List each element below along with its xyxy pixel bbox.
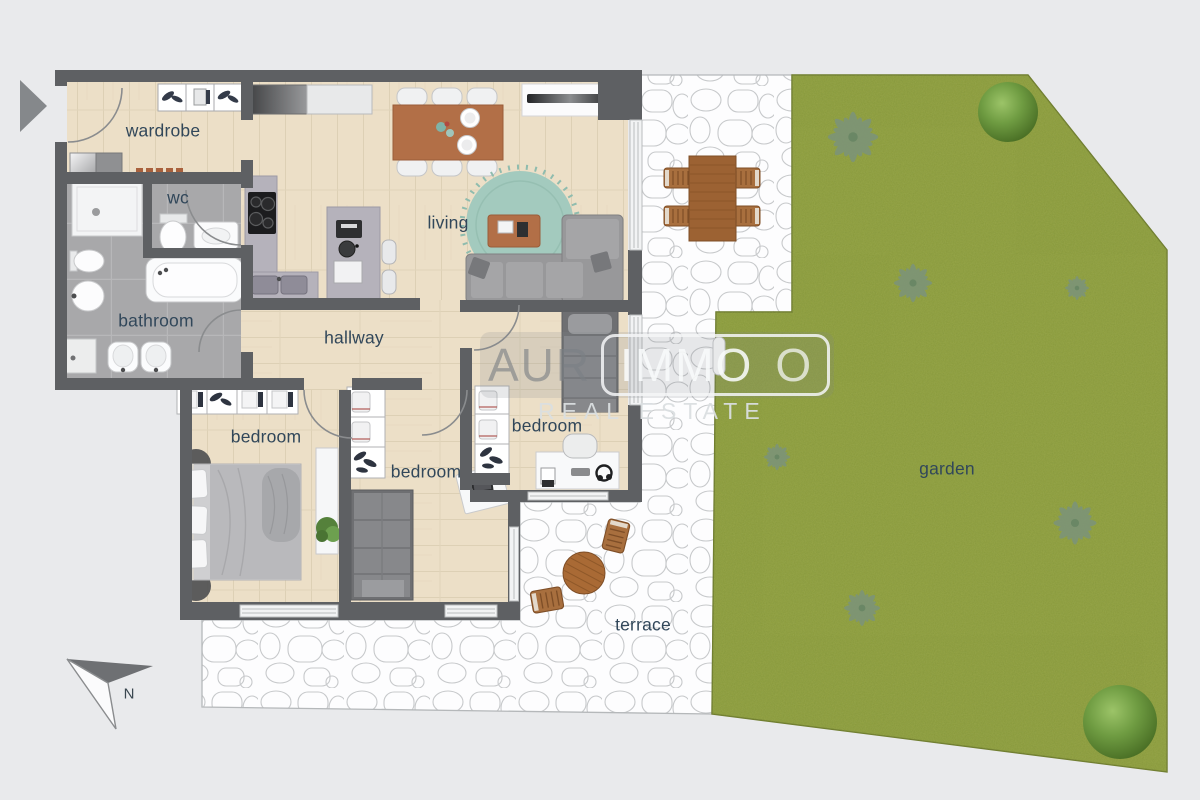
outdoor-chair-icon [664, 168, 692, 188]
room-label-living: living [427, 213, 468, 234]
watermark-brand-left: AUR [484, 338, 595, 392]
pillow-icon [568, 314, 612, 334]
watermark-brand-suffix: O [775, 338, 811, 392]
dining-set [393, 88, 503, 176]
closet-row [158, 84, 243, 111]
desk-chair-icon [563, 434, 597, 458]
kitchen-counter-top [307, 85, 372, 114]
window-icon [510, 527, 519, 601]
watermark-tagline: REAL ESTATE [538, 398, 810, 425]
floorplan-canvas: wardrobe wc bathroom hallway living bedr… [0, 0, 1200, 800]
window-icon [445, 605, 497, 617]
plant-icon [764, 444, 790, 470]
kitchen-upper-cabinet [247, 85, 307, 114]
plant-icon [1053, 501, 1096, 544]
appliance-icon [334, 261, 362, 283]
window-icon [528, 492, 608, 500]
watermark-brand-row: AUR IMMO O [480, 332, 834, 398]
toilet-icon [74, 250, 104, 272]
stool-icon [382, 270, 396, 294]
sink-icon [281, 276, 307, 294]
watermark: AUR IMMO O REAL ESTATE [480, 332, 810, 425]
dining-chair-icon [397, 158, 427, 176]
watermark-brand-box: IMMO O [601, 334, 830, 396]
dining-chair-icon [397, 88, 427, 106]
watermark-brand-boxed: IMMO [620, 338, 753, 392]
room-label-bedroom1: bedroom [231, 427, 301, 448]
room-label-hallway: hallway [324, 328, 384, 349]
single-bed [351, 490, 413, 600]
room-label-terrace: terrace [615, 615, 671, 636]
sink-icon [252, 276, 278, 294]
plant-icon [844, 590, 880, 626]
plant-icon [1065, 276, 1089, 300]
plant-icon [828, 112, 878, 162]
kettle-icon [339, 241, 355, 257]
bush-icon [1083, 685, 1157, 759]
room-label-garden: garden [919, 459, 975, 480]
bidet-icon [72, 281, 104, 311]
north-label: N [124, 686, 135, 703]
rolled-duvet [262, 468, 300, 542]
room-label-wc: wc [167, 188, 189, 209]
outdoor-chair-icon [664, 206, 692, 226]
room-label-wardrobe: wardrobe [126, 121, 201, 142]
bush-icon [978, 82, 1038, 142]
window-icon [240, 605, 338, 617]
dining-chair-icon [467, 88, 497, 106]
double-bed [182, 464, 301, 580]
entrance-arrow-icon [20, 80, 47, 132]
stool-icon [382, 240, 396, 264]
shower-icon [72, 182, 142, 236]
room-label-bathroom: bathroom [118, 311, 194, 332]
window-icon [630, 120, 642, 250]
plant-icon [894, 264, 932, 302]
coffee-machine-icon [336, 220, 362, 238]
keyboard-icon [571, 468, 590, 476]
dining-chair-icon [432, 158, 462, 176]
coffee-table [488, 215, 540, 247]
dining-chair-icon [432, 88, 462, 106]
north-arrow-icon [67, 659, 153, 729]
room-label-bedroom2: bedroom [391, 462, 461, 483]
outdoor-chair-icon [530, 586, 564, 613]
